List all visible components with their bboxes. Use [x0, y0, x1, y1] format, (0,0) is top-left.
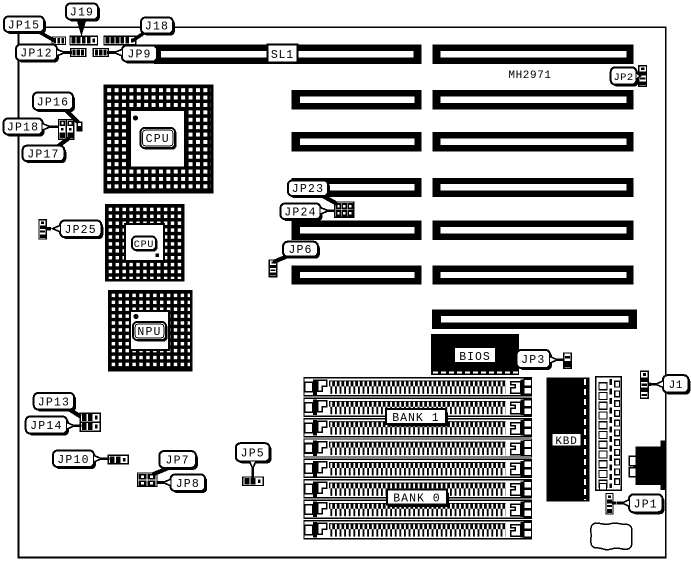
svg-text:NPU: NPU: [137, 326, 161, 339]
svg-text:J1: J1: [669, 380, 683, 392]
svg-text:JP15: JP15: [8, 19, 40, 32]
svg-text:BANK 1: BANK 1: [392, 412, 439, 425]
svg-text:JP14: JP14: [30, 420, 62, 433]
svg-text:JP24: JP24: [284, 206, 316, 219]
svg-text:JP9: JP9: [127, 49, 151, 62]
svg-text:JP10: JP10: [57, 454, 89, 467]
svg-text:JP7: JP7: [165, 454, 189, 467]
svg-text:JP3: JP3: [521, 354, 545, 367]
svg-text:BIOS: BIOS: [459, 351, 491, 364]
svg-text:CPU: CPU: [146, 133, 170, 146]
svg-text:JP6: JP6: [288, 244, 312, 257]
svg-text:JP13: JP13: [38, 396, 70, 409]
svg-text:JP16: JP16: [37, 96, 69, 109]
svg-text:JP17: JP17: [27, 148, 59, 161]
svg-text:JP8: JP8: [176, 478, 200, 491]
svg-text:JP18: JP18: [7, 122, 39, 135]
svg-text:JP23: JP23: [292, 183, 324, 196]
svg-text:JP2: JP2: [613, 72, 633, 84]
svg-text:KBD: KBD: [555, 436, 577, 448]
svg-text:JP1: JP1: [634, 498, 658, 511]
svg-text:JP12: JP12: [20, 48, 52, 61]
svg-text:JP5: JP5: [241, 447, 265, 460]
svg-text:MH2971: MH2971: [508, 70, 551, 82]
svg-text:BANK 0: BANK 0: [393, 492, 440, 505]
svg-text:CPU: CPU: [134, 240, 154, 251]
svg-text:JP25: JP25: [64, 224, 96, 237]
svg-text:J18: J18: [145, 21, 169, 34]
svg-text:J19: J19: [70, 7, 94, 20]
svg-text:SL1: SL1: [271, 49, 294, 62]
